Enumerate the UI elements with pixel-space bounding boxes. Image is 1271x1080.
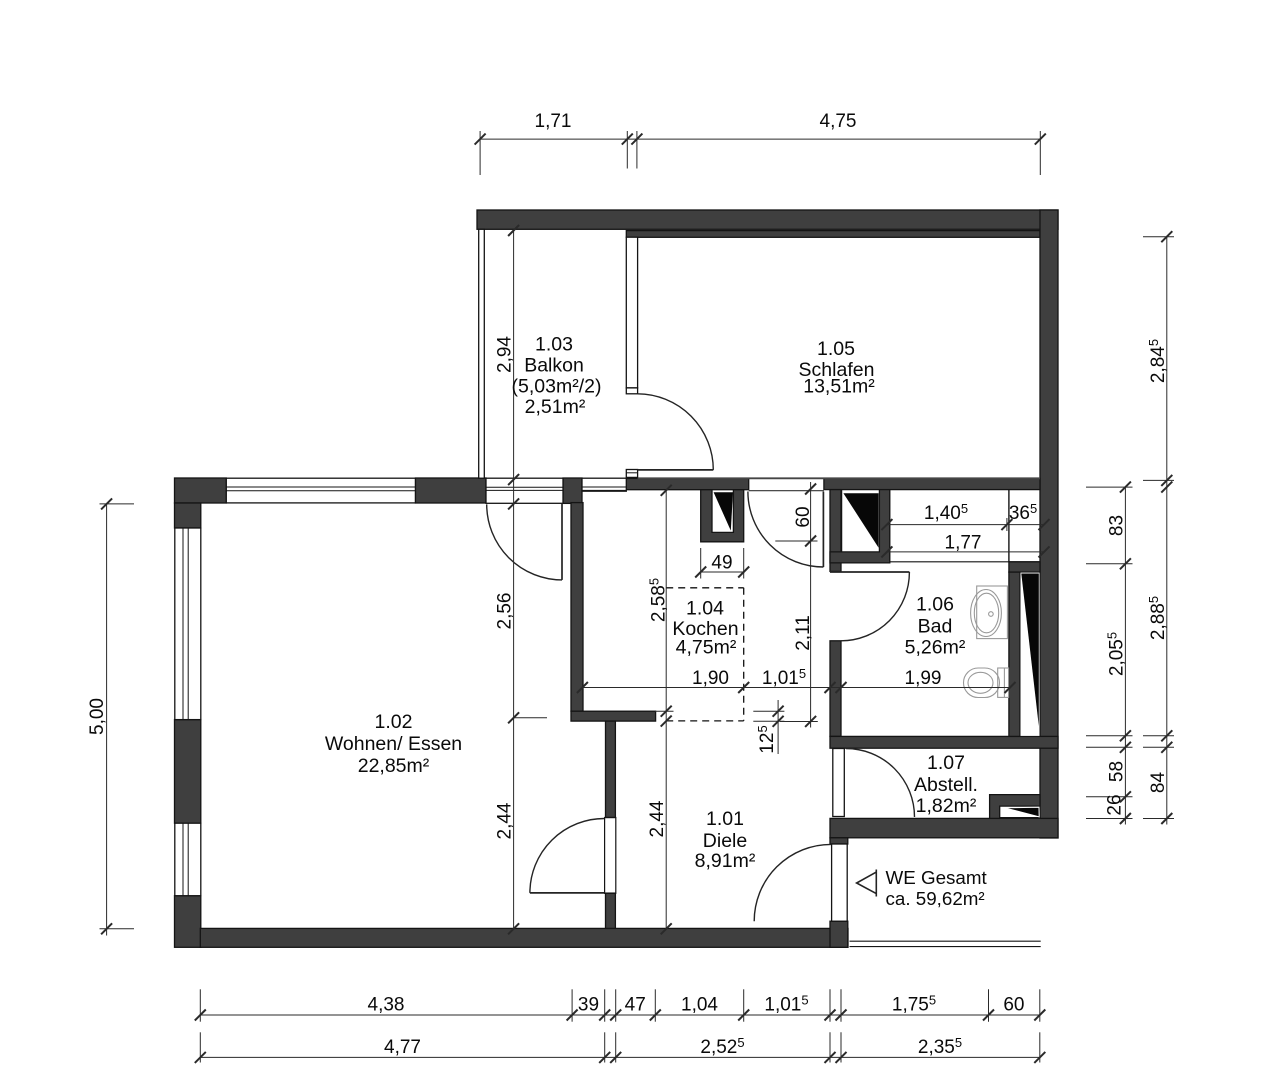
svg-text:Diele: Diele [703, 830, 747, 852]
svg-text:WE Gesamt: WE Gesamt [886, 867, 988, 888]
svg-text:60: 60 [1003, 995, 1024, 1016]
svg-text:47: 47 [625, 995, 646, 1016]
svg-text:1,90: 1,90 [692, 668, 729, 689]
svg-text:2,44: 2,44 [647, 800, 668, 837]
svg-text:2,11: 2,11 [793, 615, 814, 651]
svg-text:26: 26 [1105, 794, 1126, 815]
svg-text:39: 39 [578, 995, 599, 1016]
svg-text:49: 49 [711, 553, 732, 574]
svg-text:1.02: 1.02 [375, 711, 413, 733]
svg-text:22,85m²: 22,85m² [358, 755, 430, 777]
svg-text:Bad: Bad [918, 616, 953, 638]
svg-text:83: 83 [1107, 515, 1128, 536]
svg-text:(5,03m²/2): (5,03m²/2) [512, 376, 602, 398]
svg-text:5,00: 5,00 [87, 698, 108, 735]
svg-text:Abstell.: Abstell. [914, 774, 978, 796]
svg-text:60: 60 [793, 506, 814, 527]
svg-text:1,71: 1,71 [535, 111, 572, 132]
svg-text:5,26m²: 5,26m² [905, 637, 966, 659]
svg-text:1.04: 1.04 [686, 598, 724, 620]
svg-text:1,04: 1,04 [681, 995, 718, 1016]
svg-text:Wohnen/ Essen: Wohnen/ Essen [325, 733, 462, 755]
svg-text:1.06: 1.06 [916, 594, 954, 616]
svg-text:1.01: 1.01 [706, 808, 744, 830]
svg-text:1,82m²: 1,82m² [916, 795, 977, 817]
svg-text:84: 84 [1148, 772, 1169, 794]
svg-text:8,91m²: 8,91m² [695, 850, 756, 872]
svg-text:13,51m²: 13,51m² [803, 376, 875, 398]
svg-text:1,77: 1,77 [945, 533, 982, 554]
svg-text:4,38: 4,38 [368, 995, 405, 1016]
svg-text:1,99: 1,99 [905, 668, 942, 689]
svg-text:4,77: 4,77 [384, 1037, 421, 1058]
svg-text:4,75: 4,75 [820, 111, 857, 132]
svg-text:58: 58 [1107, 761, 1128, 782]
svg-text:Balkon: Balkon [524, 355, 584, 377]
svg-text:2,51m²: 2,51m² [525, 396, 586, 418]
svg-text:1.05: 1.05 [817, 338, 855, 360]
svg-text:4,75m²: 4,75m² [676, 637, 737, 659]
svg-text:ca. 59,62m²: ca. 59,62m² [886, 888, 985, 909]
svg-text:2,44: 2,44 [495, 802, 516, 839]
svg-text:1.07: 1.07 [927, 752, 965, 774]
svg-text:1.03: 1.03 [535, 334, 573, 356]
svg-text:2,94: 2,94 [495, 336, 516, 373]
svg-text:2,56: 2,56 [495, 593, 516, 630]
